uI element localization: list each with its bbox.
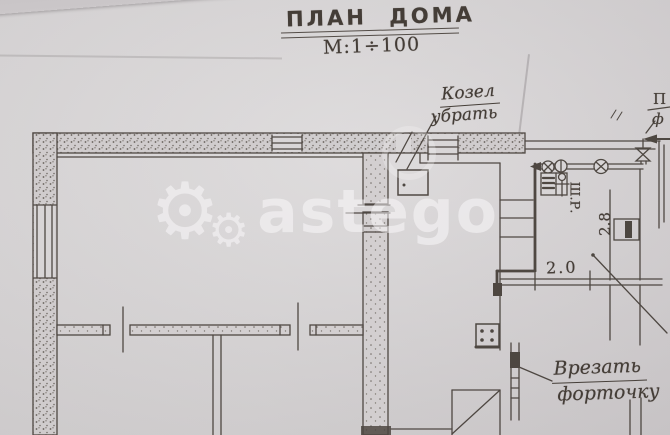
vent-window-symbol (510, 343, 520, 420)
flue-box-to-remove (398, 170, 428, 195)
interior-walls (57, 132, 500, 435)
stove-symbol (476, 324, 499, 347)
annotation-cut-vent-line2: форточку (557, 380, 660, 406)
window-symbols (34, 134, 458, 278)
annotation-cut-vent: Врезать форточку (551, 354, 660, 406)
annotation-remove-flue: Козел убрать (429, 82, 501, 128)
floor-plan-photo: ПЛАН ДОМА М:1÷100 Козел убрать Врезать ф… (0, 0, 670, 435)
pipe-meter-icon (594, 160, 608, 174)
page-title: ПЛАН ДОМА (286, 3, 467, 32)
annotation-cut-vent-line1: Врезать (551, 355, 647, 384)
dimension-label-width: 2.0 (546, 257, 578, 277)
clipped-edge-text-top: П (653, 90, 666, 108)
annotation-remove-flue-line2: убрать (430, 102, 498, 127)
valve-icon (636, 148, 650, 161)
clipped-edge-text-bottom: ф (652, 110, 664, 128)
misc-marks (611, 110, 622, 120)
gas-meter-symbol (541, 160, 569, 196)
scale-label: М:1÷100 (323, 33, 421, 58)
flue-column (500, 163, 533, 350)
regulator-label: Ш.Р. (567, 180, 582, 216)
dimension-label-height: 2.8 (596, 207, 614, 241)
